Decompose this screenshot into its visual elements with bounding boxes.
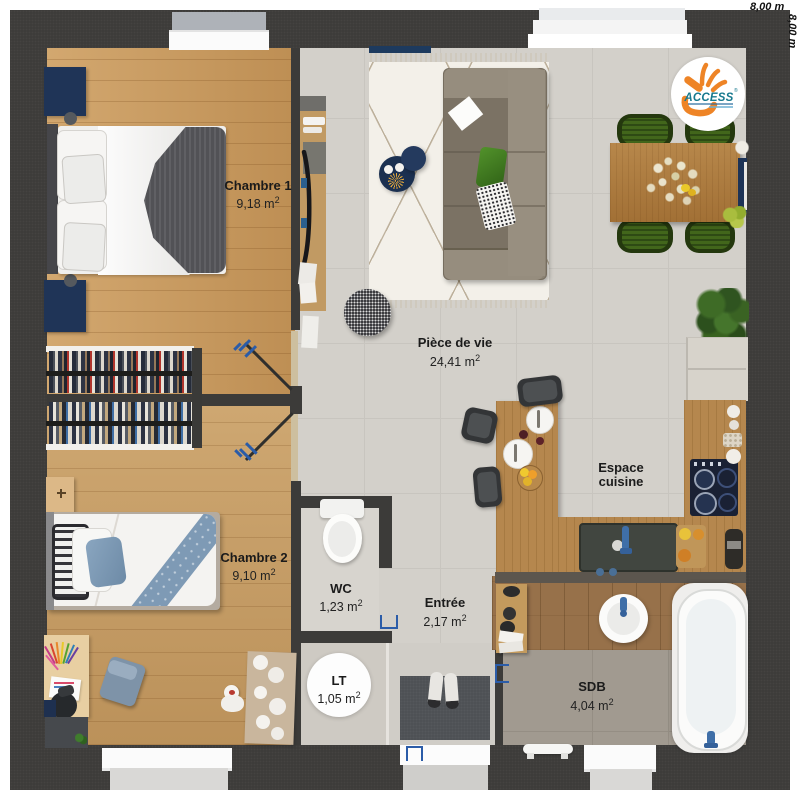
- svg-text:ACCESS: ACCESS: [683, 92, 733, 104]
- svg-text:®: ®: [734, 87, 738, 94]
